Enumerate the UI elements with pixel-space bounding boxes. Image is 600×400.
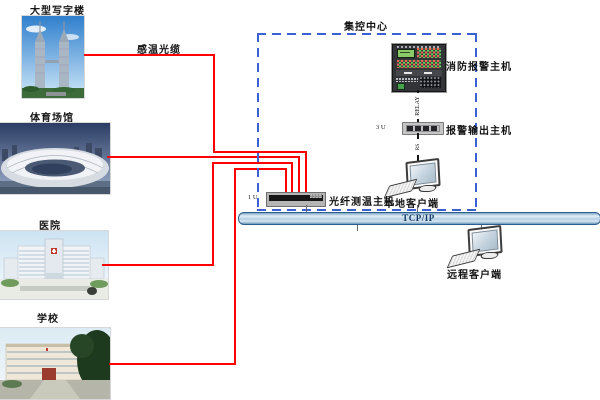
hospital-icon bbox=[0, 231, 108, 299]
panel-chip bbox=[424, 72, 432, 74]
cable-office-segment bbox=[305, 151, 307, 193]
building-label-hospital: 医院 bbox=[39, 217, 61, 232]
fiber-host-label: 光纤测温主机 bbox=[329, 193, 395, 208]
control-center-box-left bbox=[257, 33, 259, 211]
panel-mid-strip bbox=[396, 70, 442, 76]
office-towers-icon bbox=[22, 16, 84, 98]
panel-led-grid bbox=[417, 48, 441, 58]
control-center-box-bottom bbox=[257, 209, 477, 211]
cable-school-segment bbox=[109, 363, 236, 365]
cable-office-segment bbox=[213, 54, 215, 153]
cable-school-segment bbox=[285, 168, 287, 193]
control-center-box-top bbox=[257, 33, 477, 35]
building-photo-school bbox=[0, 328, 110, 399]
remote-client-label: 远程客户端 bbox=[447, 266, 502, 281]
cable-stadium-segment bbox=[298, 156, 300, 193]
cable-school-segment bbox=[234, 168, 236, 365]
serial-link-label: RS bbox=[414, 139, 422, 155]
cable-hospital-segment bbox=[212, 162, 293, 164]
building-label-school: 学校 bbox=[37, 310, 59, 325]
panel-lcd-screen bbox=[397, 49, 415, 58]
panel-power-button bbox=[397, 83, 405, 90]
rack-slots bbox=[406, 125, 440, 132]
cable-office-segment bbox=[213, 151, 307, 153]
panel-chip bbox=[404, 72, 412, 74]
cable-hospital-segment bbox=[102, 264, 214, 266]
panel-button-row bbox=[396, 78, 418, 82]
cable-office-segment bbox=[84, 54, 215, 56]
building-photo-hospital bbox=[0, 231, 108, 299]
relay-link-label: RELAY bbox=[414, 93, 422, 119]
stadium-icon bbox=[0, 123, 110, 194]
cable-hospital-segment bbox=[212, 162, 214, 266]
building-photo-stadium bbox=[0, 123, 110, 194]
alarm-output-rack-icon bbox=[402, 122, 444, 135]
tcpip-bus-label: TCP/IP bbox=[238, 213, 599, 223]
fire-alarm-host-label: 消防报警主机 bbox=[446, 58, 512, 73]
fire-alarm-panel-icon bbox=[392, 44, 446, 92]
alarm-output-host-label: 报警输出主机 bbox=[446, 122, 512, 137]
building-label-stadium: 体育场馆 bbox=[30, 109, 74, 124]
panel-keypad bbox=[420, 77, 441, 88]
fiber-host-size-label: 1 U bbox=[248, 194, 258, 201]
building-label-office: 大型写字楼 bbox=[30, 2, 85, 17]
cable-stadium-segment bbox=[107, 156, 300, 158]
rack-size-label: 3 U bbox=[376, 124, 386, 131]
cable-school-segment bbox=[234, 168, 287, 170]
cable-hospital-segment bbox=[291, 162, 293, 193]
system-diagram: 大型写字楼 体育场馆 bbox=[0, 0, 600, 400]
monitor-stand bbox=[417, 185, 438, 192]
monitor-stand bbox=[479, 252, 500, 259]
school-icon bbox=[0, 328, 110, 399]
fiber-host-display bbox=[310, 194, 322, 198]
control-center-label: 集控中心 bbox=[344, 18, 388, 33]
building-photo-office bbox=[22, 16, 84, 98]
panel-led-grid bbox=[397, 60, 441, 68]
fiber-host-icon bbox=[266, 192, 326, 207]
